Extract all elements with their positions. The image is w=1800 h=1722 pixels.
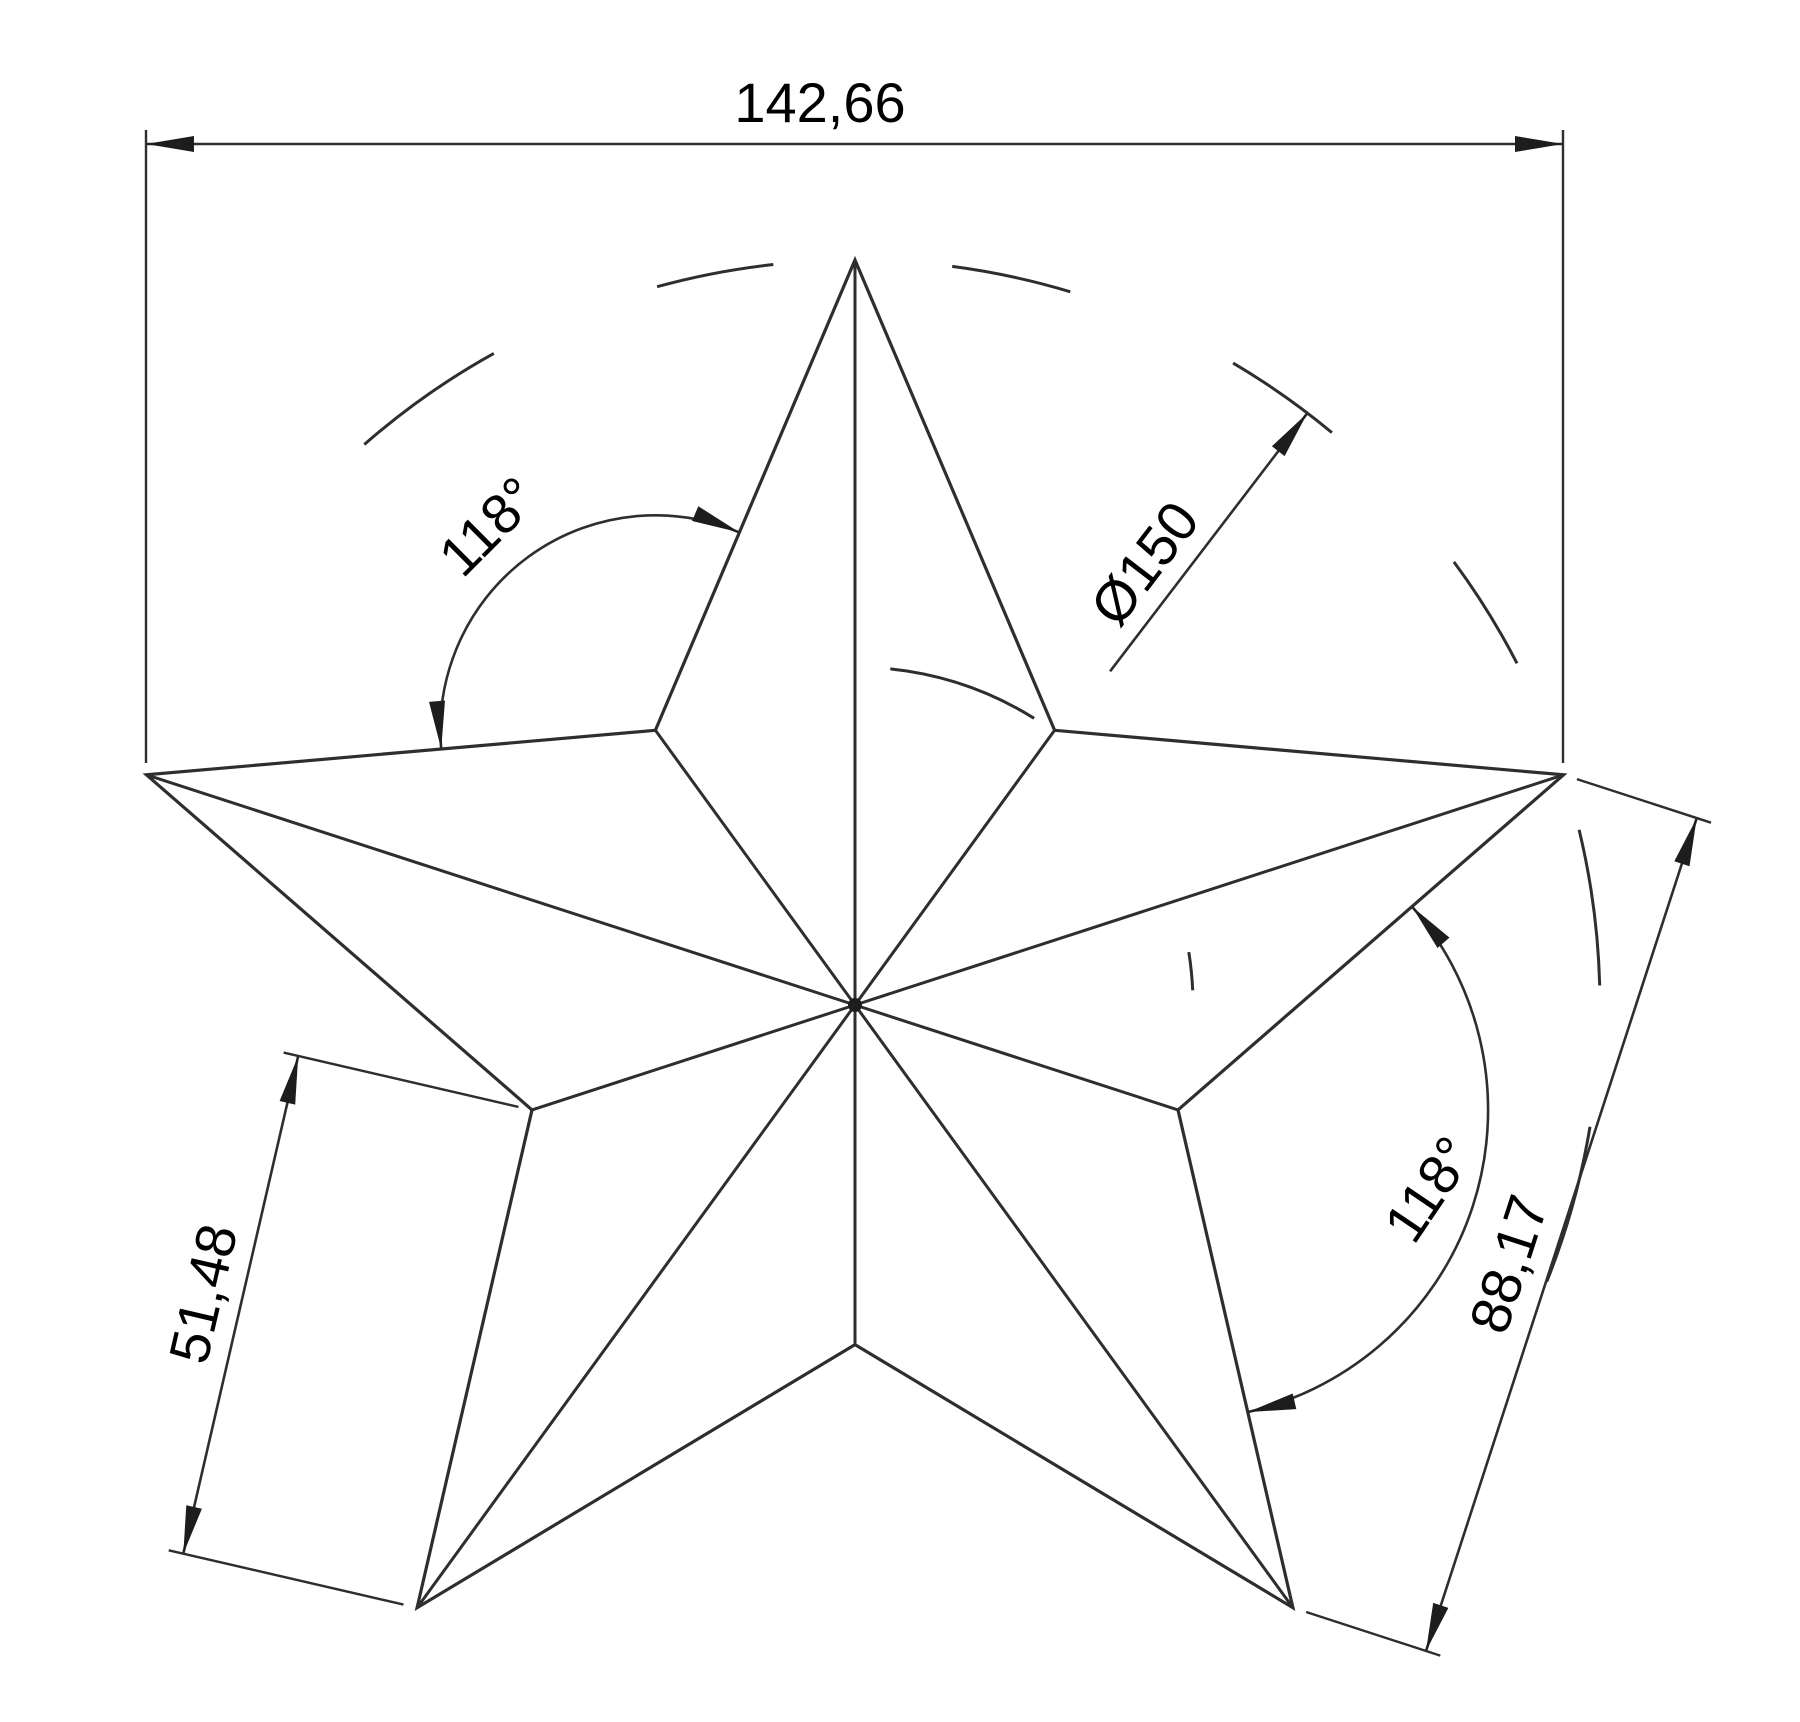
arrowhead-diameter <box>1272 413 1308 456</box>
facet-line <box>855 730 1055 1005</box>
circle-dash <box>1579 830 1600 986</box>
dimension-angle-upper-left: 118° <box>426 464 739 749</box>
circle-dash <box>657 265 773 287</box>
arrowhead-top <box>1674 818 1696 866</box>
facet-line <box>146 775 855 1005</box>
arrowhead-right <box>1515 136 1563 152</box>
extension-line <box>284 1053 519 1107</box>
extension-line <box>1577 779 1711 823</box>
dimension-text-edge: 51,48 <box>157 1218 250 1369</box>
facet-line <box>655 730 855 1005</box>
arrowhead-arc-lower <box>429 701 445 750</box>
circumscribed-circle-dashes <box>364 265 1599 1282</box>
extension-line <box>1306 1612 1440 1656</box>
circle-dash <box>364 353 494 444</box>
star-center-point <box>848 998 862 1012</box>
star-shape <box>146 260 1563 1608</box>
star-facet-lines <box>146 260 1563 1608</box>
arrowhead-bottom <box>183 1505 202 1554</box>
extension-line <box>169 1550 404 1604</box>
dimension-text-width: 142,66 <box>734 71 905 134</box>
dimension-text-angle-lr: 118° <box>1371 1125 1486 1253</box>
facet-line <box>855 1005 1293 1608</box>
dimension-edge-length: 51,48 <box>157 1053 519 1605</box>
inner-circle-dashes <box>890 669 1192 990</box>
arrowhead-arc-upper <box>1412 907 1450 948</box>
circle-dash <box>890 669 1034 718</box>
circle-dash <box>952 266 1070 291</box>
arrowhead-arc-upper <box>692 506 739 532</box>
drawing-canvas: 142,66 Ø150 118° 51,48 <box>0 0 1800 1722</box>
circle-dash <box>1233 363 1332 433</box>
dimension-angle-lower-right: 118° <box>1248 907 1488 1413</box>
arrowhead-bottom <box>1426 1603 1448 1651</box>
arrowhead-arc-lower <box>1248 1394 1297 1413</box>
technical-drawing-svg: 142,66 Ø150 118° 51,48 <box>0 0 1800 1722</box>
dimension-line <box>1426 818 1697 1651</box>
circle-dash <box>1454 562 1517 663</box>
facet-line <box>532 1005 855 1110</box>
facet-line <box>417 1005 855 1608</box>
facet-line <box>855 1005 1178 1110</box>
arrowhead-top <box>280 1056 299 1105</box>
dimension-diameter: Ø150 <box>1078 413 1308 671</box>
circle-dash <box>1189 952 1193 990</box>
dimension-text-angle-ul: 118° <box>426 464 550 588</box>
arrowhead-left <box>146 136 194 152</box>
dimension-point-chord: 88,17 <box>1306 779 1711 1656</box>
facet-line <box>855 775 1564 1005</box>
